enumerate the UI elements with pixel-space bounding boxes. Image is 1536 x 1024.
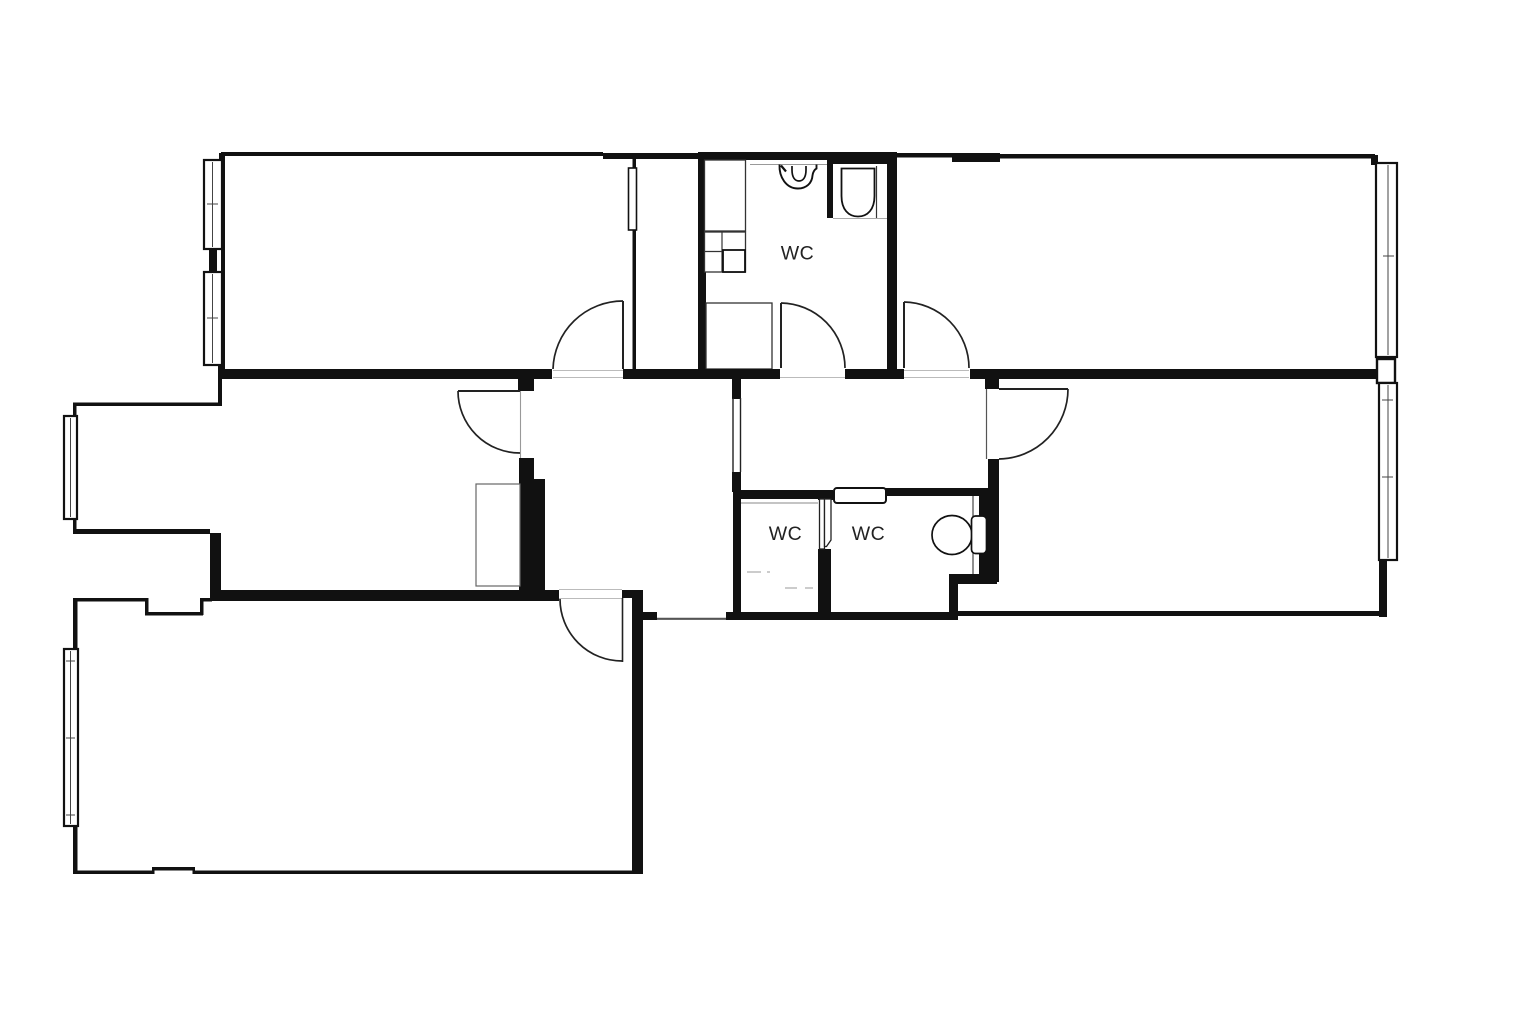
svg-text:WC: WC [781,243,815,265]
svg-text:WC: WC [769,523,803,545]
svg-text:WC: WC [852,523,886,545]
